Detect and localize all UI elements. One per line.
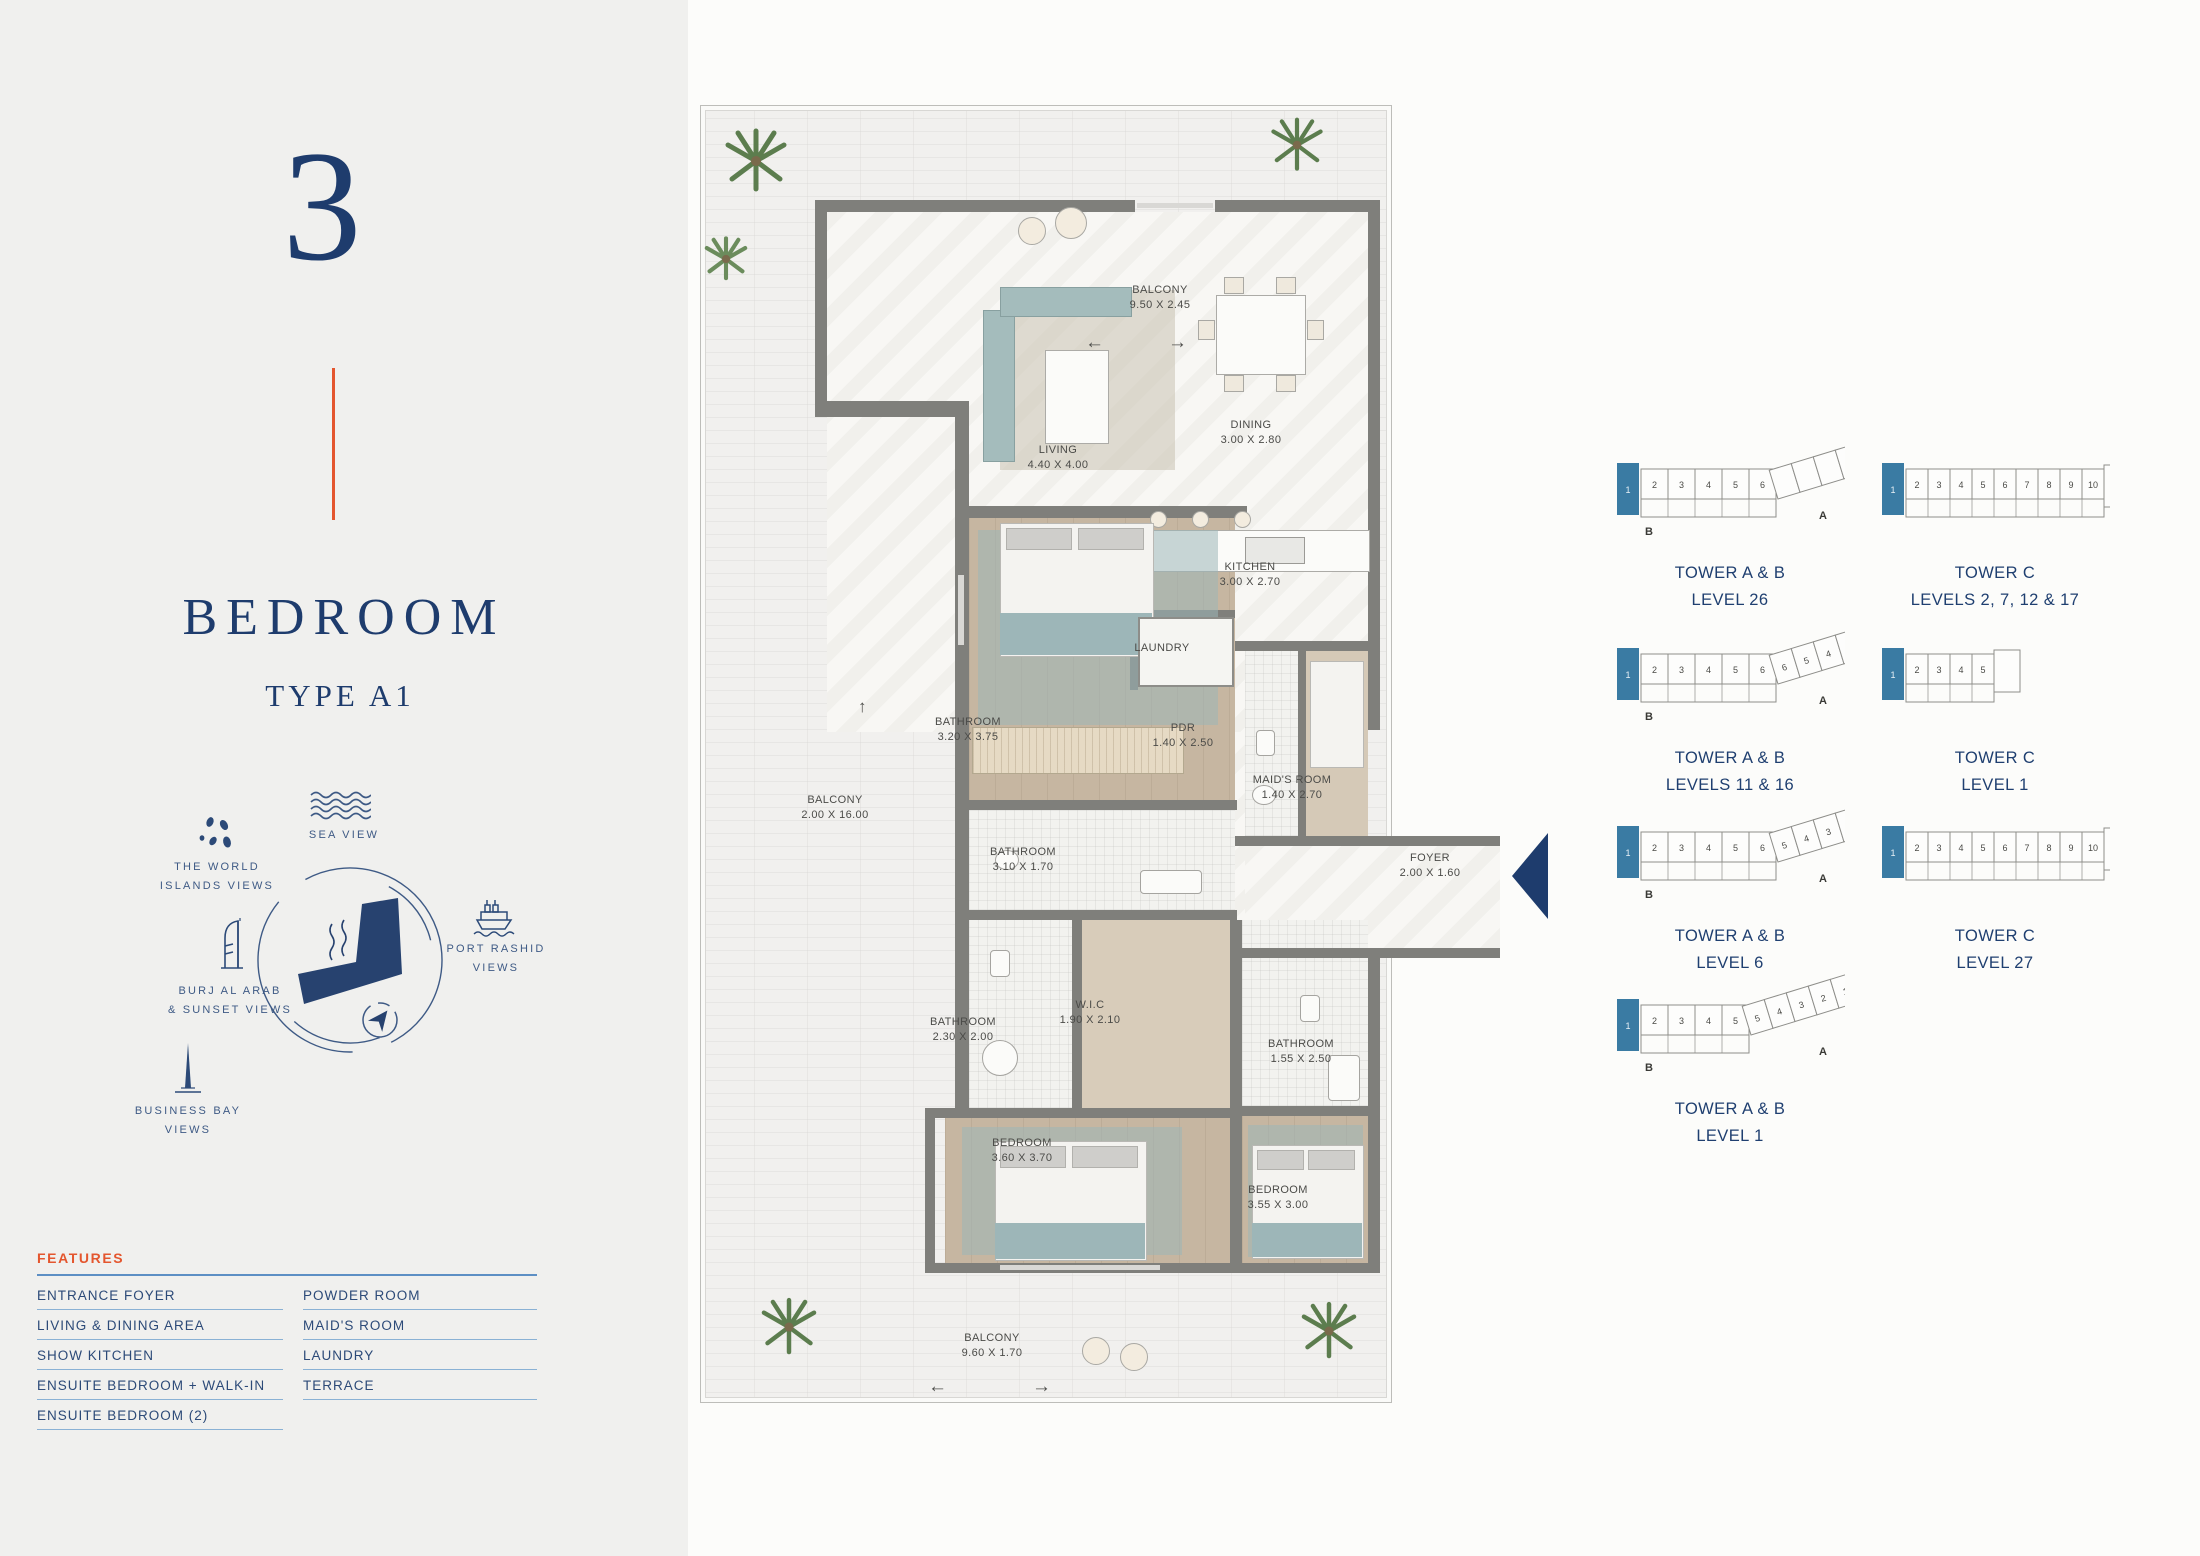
feature-item-right-1: MAID'S ROOM <box>303 1310 537 1340</box>
north-arrow: ↑ <box>858 697 867 717</box>
svg-text:5: 5 <box>1980 480 1985 490</box>
room-name: BEDROOM <box>992 1136 1053 1151</box>
tower-level: LEVEL 27 <box>1880 950 2110 977</box>
svg-text:7: 7 <box>2024 480 2029 490</box>
balcony-door-glass <box>1137 203 1213 208</box>
tower-caption: TOWER A & BLEVEL 1 <box>1615 1096 1845 1150</box>
wall <box>1235 641 1380 651</box>
room-name: BATHROOM <box>935 715 1001 730</box>
features-rule <box>37 1274 537 1276</box>
coffee-table <box>1045 350 1109 444</box>
features-column-left: ENTRANCE FOYERLIVING & DINING AREASHOW K… <box>37 1280 283 1430</box>
wall <box>815 401 969 417</box>
terrace-chair <box>1120 1343 1148 1371</box>
terrace-chair <box>1055 207 1087 239</box>
room-name: W.I.C <box>1060 998 1121 1013</box>
svg-text:6: 6 <box>2002 843 2007 853</box>
bedroom-door-glass <box>1000 1265 1160 1270</box>
toilet <box>990 950 1010 977</box>
room-name: BATHROOM <box>930 1015 996 1030</box>
svg-text:1: 1 <box>1890 485 1895 495</box>
tower-diagram-2: 1234567891011TOWER CLEVELS 2, 7, 12 & 17 <box>1880 437 2110 614</box>
room-name: KITCHEN <box>1220 560 1281 575</box>
room-dimensions: 2.00 X 16.00 <box>801 808 868 823</box>
svg-text:4: 4 <box>1958 843 1963 853</box>
feature-item-right-3: TERRACE <box>303 1370 537 1400</box>
room-label: BALCONY2.00 X 16.00 <box>801 793 868 823</box>
svg-text:5: 5 <box>1980 665 1985 675</box>
tower-caption: TOWER A & BLEVEL 6 <box>1615 923 1845 977</box>
feature-item-right-2: LAUNDRY <box>303 1340 537 1370</box>
bed-throw <box>1000 613 1152 655</box>
wall <box>925 1108 935 1273</box>
svg-text:8: 8 <box>2046 480 2051 490</box>
tower-diagram-4: 12345TOWER CLEVEL 1 <box>1880 622 2110 799</box>
left-info-panel: 3 BEDROOM TYPE A1 SEA VIEW THE WORLD ISL… <box>0 0 688 1556</box>
dimension-arrow-left: ← <box>1085 333 1104 352</box>
toilet <box>1256 730 1275 756</box>
plot-compass-diagram <box>252 862 448 1058</box>
svg-text:5: 5 <box>1733 480 1738 490</box>
room-label: DINING3.00 X 2.80 <box>1221 418 1282 448</box>
svg-text:6: 6 <box>1760 843 1765 853</box>
wall <box>1215 200 1380 212</box>
tower-b-letter: B <box>1645 711 1653 723</box>
svg-text:10: 10 <box>2088 843 2098 853</box>
toilet <box>1300 995 1320 1022</box>
room-label: BALCONY9.60 X 1.70 <box>962 1331 1023 1361</box>
features-heading: FEATURES <box>37 1250 537 1266</box>
dimension-arrow-left: ← <box>928 1377 947 1396</box>
room-name: BALCONY <box>962 1331 1023 1346</box>
terrace-chair <box>1082 1337 1110 1365</box>
svg-text:5: 5 <box>1733 843 1738 853</box>
svg-text:3: 3 <box>1679 1016 1684 1026</box>
bar-stool <box>1192 511 1209 528</box>
burj-al-arab-icon <box>219 918 245 970</box>
tower-level: LEVEL 26 <box>1615 587 1845 614</box>
tower-diagram-7: 1234554321ABTOWER A & BLEVEL 1 <box>1615 973 1845 1150</box>
svg-text:8: 8 <box>2046 843 2051 853</box>
room-name: LIVING <box>1028 443 1089 458</box>
svg-text:2: 2 <box>1914 665 1919 675</box>
room-dimensions: 3.60 X 3.70 <box>992 1151 1053 1166</box>
room-dimensions: 3.55 X 3.00 <box>1248 1198 1309 1213</box>
svg-text:5: 5 <box>1733 1016 1738 1026</box>
room-label: BATHROOM1.55 X 2.50 <box>1268 1037 1334 1067</box>
room-dimensions: 2.00 X 1.60 <box>1400 866 1461 881</box>
tower-caption: TOWER CLEVEL 1 <box>1880 745 2110 799</box>
room-dimensions: 3.10 X 1.70 <box>990 860 1056 875</box>
svg-text:6: 6 <box>1760 480 1765 490</box>
room-name: DINING <box>1221 418 1282 433</box>
svg-text:3: 3 <box>1936 480 1941 490</box>
svg-text:3: 3 <box>1936 843 1941 853</box>
tower-c-plan-icon: 12345678910 <box>1880 800 2110 912</box>
wall <box>1230 920 1242 1270</box>
dining-chair <box>1198 320 1215 340</box>
svg-text:2: 2 <box>1652 480 1657 490</box>
dining-chair <box>1307 320 1324 340</box>
svg-text:9: 9 <box>2068 843 2073 853</box>
room-label: LAUNDRY <box>1134 641 1189 656</box>
terrace-chair <box>1018 217 1046 245</box>
svg-text:9: 9 <box>2068 480 2073 490</box>
tower-diagram-1: 123456ABTOWER A & BLEVEL 26 <box>1615 437 1845 614</box>
svg-text:10: 10 <box>2088 480 2098 490</box>
room-label: LIVING4.40 X 4.00 <box>1028 443 1089 473</box>
vanity <box>1140 870 1202 894</box>
svg-text:3: 3 <box>1679 843 1684 853</box>
tower-diagram-5: 12345654321ABTOWER A & BLEVEL 6 <box>1615 800 1845 977</box>
brochure-page: { "page": { "unit_number": "3", "title":… <box>0 0 2200 1556</box>
pillow <box>1308 1150 1355 1170</box>
tower-ab-plan-icon: 123456AB <box>1615 437 1845 549</box>
sofa <box>983 310 1015 462</box>
wall <box>815 200 827 417</box>
tower-level: LEVELS 2, 7, 12 & 17 <box>1880 587 2110 614</box>
room-label: BALCONY9.50 X 2.45 <box>1130 283 1191 313</box>
room-label: BATHROOM2.30 X 2.00 <box>930 1015 996 1045</box>
room-label: BEDROOM3.60 X 3.70 <box>992 1136 1053 1166</box>
room-name: BALCONY <box>801 793 868 808</box>
room-label: PDR1.40 X 2.50 <box>1153 721 1214 751</box>
unit-count-numeral: 3 <box>283 128 362 286</box>
tower-caption: TOWER CLEVELS 2, 7, 12 & 17 <box>1880 560 2110 614</box>
feature-item-left-0: ENTRANCE FOYER <box>37 1280 283 1310</box>
palm-tree-icon <box>718 123 794 199</box>
svg-text:4: 4 <box>1706 1016 1711 1026</box>
feature-item-left-1: LIVING & DINING AREA <box>37 1310 283 1340</box>
dining-chair <box>1224 277 1244 294</box>
tower-b-letter: B <box>1645 1062 1653 1074</box>
tower-a-letter: A <box>1819 873 1827 885</box>
room-label: FOYER2.00 X 1.60 <box>1400 851 1461 881</box>
svg-text:6: 6 <box>2002 480 2007 490</box>
wall <box>955 800 1237 810</box>
view-label-sea: SEA VIEW <box>309 826 379 845</box>
tower-name: TOWER C <box>1880 745 2110 772</box>
room-name: PDR <box>1153 721 1214 736</box>
svg-text:1: 1 <box>1625 670 1630 680</box>
sofa <box>1000 287 1132 317</box>
room-dimensions: 9.60 X 1.70 <box>962 1346 1023 1361</box>
tower-name: TOWER C <box>1880 923 2110 950</box>
sea-waves-icon <box>309 790 371 820</box>
svg-text:3: 3 <box>1679 665 1684 675</box>
view-label-burj-al-arab: BURJ AL ARAB & SUNSET VIEWS <box>168 982 292 1019</box>
svg-text:2: 2 <box>1914 480 1919 490</box>
page-subtitle: TYPE A1 <box>265 678 414 714</box>
svg-text:4: 4 <box>1958 480 1963 490</box>
svg-text:6: 6 <box>1760 665 1765 675</box>
pillow <box>1006 528 1072 550</box>
features-column-right: POWDER ROOMMAID'S ROOMLAUNDRYTERRACE <box>303 1280 537 1430</box>
room-dimensions: 9.50 X 2.45 <box>1130 298 1191 313</box>
tower-ab-plan-icon: 1234554321AB <box>1615 973 1845 1085</box>
features-section: FEATURES ENTRANCE FOYERLIVING & DINING A… <box>37 1250 537 1430</box>
dining-chair <box>1276 375 1296 392</box>
svg-text:4: 4 <box>1706 480 1711 490</box>
bed-throw <box>1252 1223 1362 1257</box>
tower-b-letter: B <box>1645 526 1653 538</box>
room-label: KITCHEN3.00 X 2.70 <box>1220 560 1281 590</box>
room-dimensions: 1.90 X 2.10 <box>1060 1013 1121 1028</box>
room-dimensions: 3.00 X 2.80 <box>1221 433 1282 448</box>
tower-caption: TOWER CLEVEL 27 <box>1880 923 2110 977</box>
room-dimensions: 1.40 X 2.70 <box>1253 788 1332 803</box>
world-islands-icon <box>196 816 240 852</box>
palm-tree-icon <box>1295 1297 1363 1365</box>
svg-text:2: 2 <box>1914 843 1919 853</box>
tower-a-letter: A <box>1819 695 1827 707</box>
svg-text:4: 4 <box>1706 665 1711 675</box>
room-name: FOYER <box>1400 851 1461 866</box>
palm-tree-icon <box>1265 113 1329 177</box>
room-dimensions: 4.40 X 4.00 <box>1028 458 1089 473</box>
svg-text:5: 5 <box>1733 665 1738 675</box>
tower-a-letter: A <box>1819 1046 1827 1058</box>
dining-chair <box>1224 375 1244 392</box>
svg-text:4: 4 <box>1706 843 1711 853</box>
business-bay-spire-icon <box>171 1042 205 1098</box>
svg-text:5: 5 <box>1980 843 1985 853</box>
wall <box>815 200 1135 212</box>
wall <box>1242 1106 1380 1116</box>
svg-text:1: 1 <box>1890 848 1895 858</box>
wall <box>1298 641 1306 846</box>
dimension-arrow-right: → <box>1032 1377 1051 1396</box>
room-label: BATHROOM3.10 X 1.70 <box>990 845 1056 875</box>
room-name: BATHROOM <box>1268 1037 1334 1052</box>
tower-level: LEVELS 11 & 16 <box>1615 772 1845 799</box>
tower-ab-plan-icon: 12345654321AB <box>1615 800 1845 912</box>
pillow <box>1257 1150 1304 1170</box>
tower-diagram-3: 123456654321ABTOWER A & BLEVELS 11 & 16 <box>1615 622 1845 799</box>
bed-throw <box>995 1223 1145 1259</box>
tower-name: TOWER A & B <box>1615 1096 1845 1123</box>
tower-name: TOWER A & B <box>1615 923 1845 950</box>
tower-name: TOWER A & B <box>1615 745 1845 772</box>
floor-bathroom-230 <box>969 920 1072 1108</box>
wall <box>935 1108 1235 1118</box>
palm-tree-icon <box>700 233 752 285</box>
accent-divider-line <box>332 368 335 520</box>
room-dimensions: 3.00 X 2.70 <box>1220 575 1281 590</box>
room-name: MAID'S ROOM <box>1253 773 1332 788</box>
feature-item-left-3: ENSUITE BEDROOM + WALK-IN <box>37 1370 283 1400</box>
tower-name: TOWER A & B <box>1615 560 1845 587</box>
feature-item-right-0: POWDER ROOM <box>303 1280 537 1310</box>
palm-tree-icon <box>755 1293 823 1361</box>
tower-caption: TOWER A & BLEVELS 11 & 16 <box>1615 745 1845 799</box>
pillow <box>1072 1146 1138 1168</box>
svg-text:3: 3 <box>1679 480 1684 490</box>
wall <box>1235 836 1500 846</box>
svg-text:2: 2 <box>1652 1016 1657 1026</box>
tower-a-letter: A <box>1819 510 1827 522</box>
tower-caption: TOWER A & BLEVEL 26 <box>1615 560 1845 614</box>
svg-text:2: 2 <box>1652 843 1657 853</box>
tower-diagram-6: 12345678910TOWER CLEVEL 27 <box>1880 800 2110 977</box>
room-label: MAID'S ROOM1.40 X 2.70 <box>1253 773 1332 803</box>
room-dimensions: 3.20 X 3.75 <box>935 730 1001 745</box>
tower-ab-plan-icon: 123456654321AB <box>1615 622 1845 734</box>
svg-text:3: 3 <box>1936 665 1941 675</box>
room-label: BEDROOM3.55 X 3.00 <box>1248 1183 1309 1213</box>
entrance-arrow-icon <box>1512 833 1548 919</box>
dimension-arrow-right: → <box>1168 333 1187 352</box>
room-name: BEDROOM <box>1248 1183 1309 1198</box>
port-rashid-ship-icon <box>471 896 517 938</box>
svg-text:1: 1 <box>1890 670 1895 680</box>
feature-item-left-4: ENSUITE BEDROOM (2) <box>37 1400 283 1430</box>
svg-text:2: 2 <box>1652 665 1657 675</box>
tower-b-letter: B <box>1645 889 1653 901</box>
master-door-glass <box>958 575 964 645</box>
view-label-business-bay: BUSINESS BAY VIEWS <box>135 1102 241 1139</box>
room-name: BATHROOM <box>990 845 1056 860</box>
room-name: LAUNDRY <box>1134 641 1189 656</box>
tower-c-plan-icon: 1234567891011 <box>1880 437 2110 549</box>
room-label: BATHROOM3.20 X 3.75 <box>935 715 1001 745</box>
feature-item-left-2: SHOW KITCHEN <box>37 1340 283 1370</box>
bar-stool <box>1234 511 1251 528</box>
pillow <box>1078 528 1144 550</box>
tower-name: TOWER C <box>1880 560 2110 587</box>
wall <box>955 910 1237 920</box>
dining-chair <box>1276 277 1296 294</box>
page-title: BEDROOM <box>182 588 505 647</box>
svg-text:1: 1 <box>1625 1021 1630 1031</box>
room-dimensions: 1.55 X 2.50 <box>1268 1052 1334 1067</box>
tower-level: LEVEL 1 <box>1615 1123 1845 1150</box>
floor-plan: ← → ← → ↑ BALCONY9.50 X 2.45LIVING4.40 X… <box>700 105 1550 1405</box>
svg-text:1: 1 <box>1625 848 1630 858</box>
tower-c-plan-icon: 12345 <box>1880 622 2110 734</box>
room-label: W.I.C1.90 X 2.10 <box>1060 998 1121 1028</box>
svg-text:7: 7 <box>2024 843 2029 853</box>
dining-table <box>1216 295 1306 375</box>
svg-text:4: 4 <box>1958 665 1963 675</box>
room-dimensions: 1.40 X 2.50 <box>1153 736 1214 751</box>
room-dimensions: 2.30 X 2.00 <box>930 1030 996 1045</box>
svg-text:1: 1 <box>1625 485 1630 495</box>
tower-level: LEVEL 1 <box>1880 772 2110 799</box>
shower <box>982 1040 1018 1076</box>
view-label-port-rashid: PORT RASHID VIEWS <box>447 940 546 977</box>
room-name: BALCONY <box>1130 283 1191 298</box>
maids-bed <box>1310 661 1364 768</box>
